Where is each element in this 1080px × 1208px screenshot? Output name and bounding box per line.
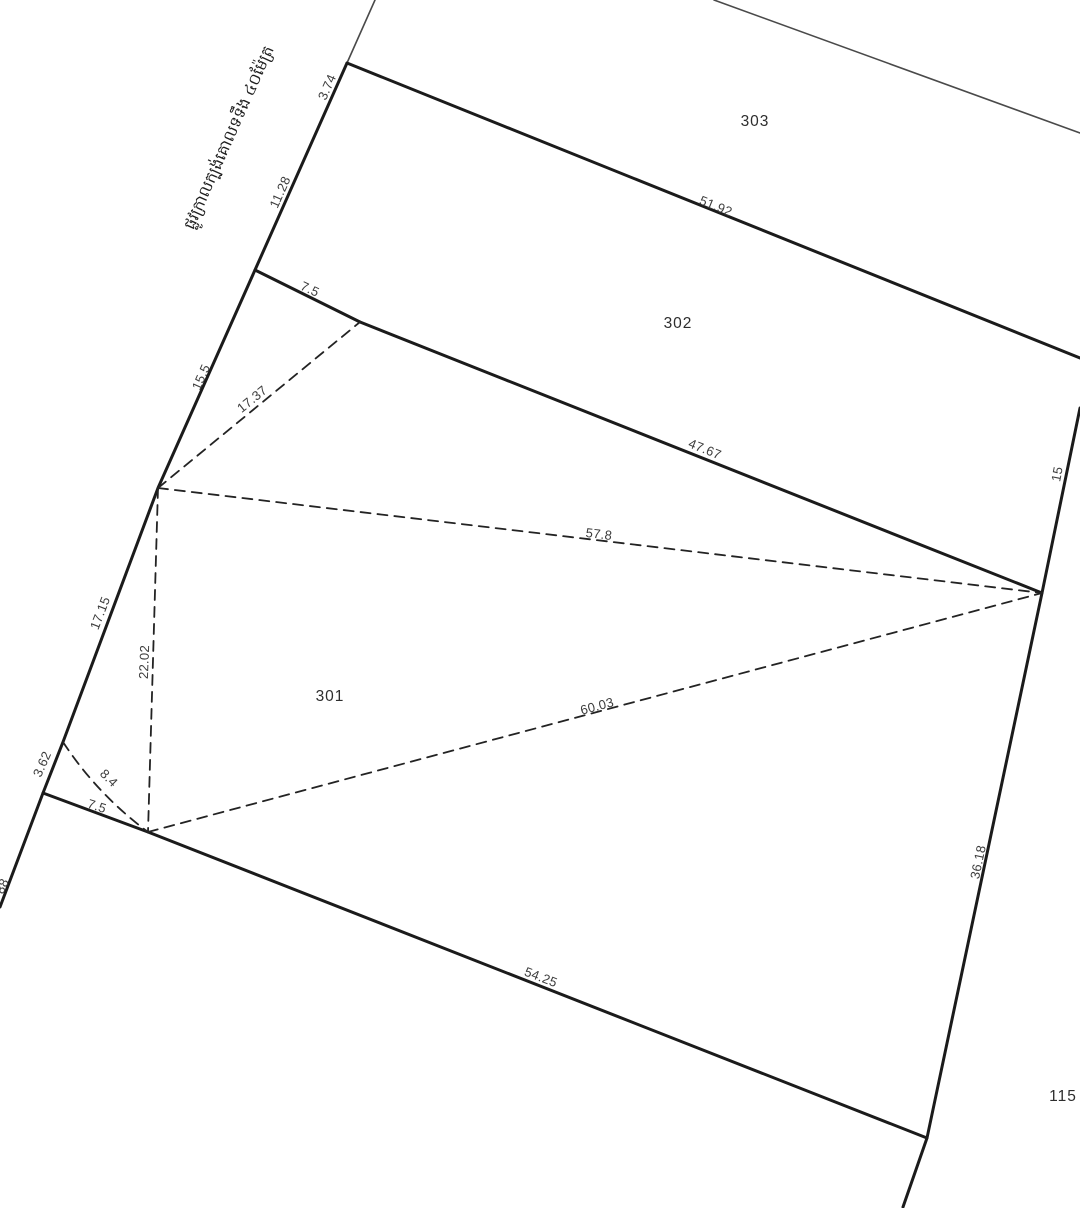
parcel-number-303: 303 [741,113,770,131]
parcel-boundary-drawing [0,0,1080,1208]
tie-arc-8-4 [63,742,148,832]
parcel-number-301: 301 [316,688,345,706]
dimension-label: 15 [1048,465,1066,483]
boundary-301-south [148,832,927,1138]
parcel-number-302: 302 [664,315,693,333]
dimension-label: 57.8 [585,525,613,543]
dimension-label: 22.02 [136,645,152,680]
road-edge-boundary [0,63,347,907]
cadastral-plan: ផ្លូវក្រាលក្បង់គោលទទឹង ៤០ម៉ែត្រ 30330230… [0,0,1080,1208]
tie-line-17-37 [158,322,360,488]
parcel-number-115: 115 [1049,1088,1077,1106]
road-edge-extension [347,0,375,63]
